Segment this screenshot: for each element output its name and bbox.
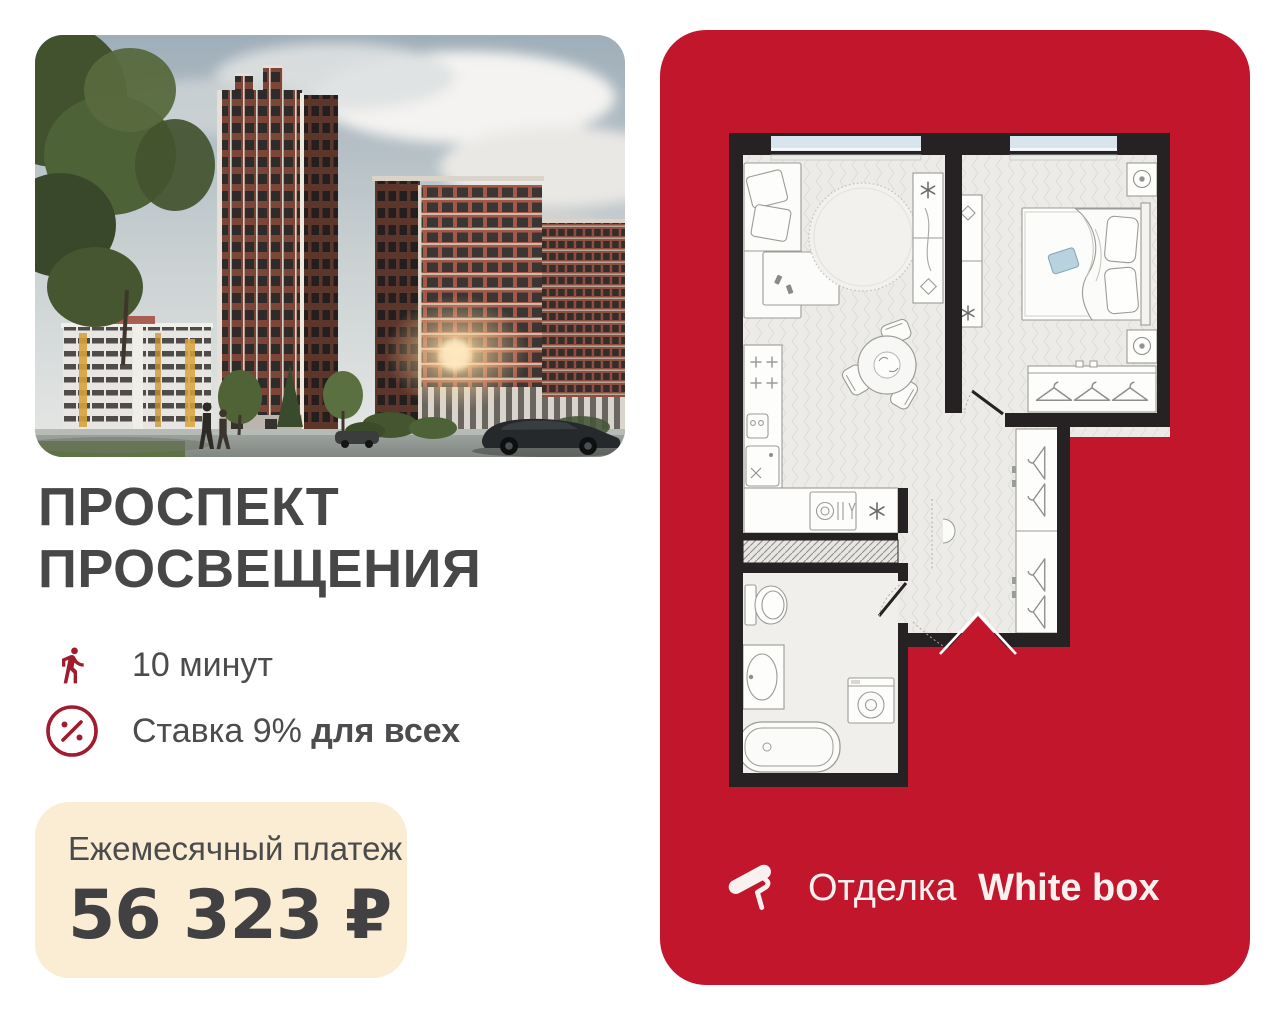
- percent-circle-icon: [44, 702, 100, 760]
- finish-label: Отделка White box: [808, 867, 1160, 910]
- washing-machine: [848, 678, 894, 723]
- walking-person-icon: [44, 636, 100, 694]
- floor-plan-card: Отделка White box: [660, 30, 1250, 985]
- page-title: ПРОСПЕКТ ПРОСВЕЩЕНИЯ: [38, 476, 481, 600]
- right-building: [372, 176, 544, 438]
- bed: [1022, 203, 1150, 325]
- payment-box: Ежемесячный платеж 56 323 ₽: [35, 802, 407, 978]
- left-building: [61, 316, 213, 437]
- feature-walk-label: 10 минут: [132, 646, 273, 685]
- kitchen-sink: [746, 446, 779, 486]
- feature-rate-label: Ставка 9% для всех: [132, 712, 460, 751]
- round-rug: [809, 183, 917, 291]
- floor-plan: [729, 133, 1170, 787]
- toilet: [745, 585, 787, 625]
- bedroom-wardrobe: [1028, 361, 1156, 412]
- feature-walk-time: 10 минут: [44, 636, 273, 694]
- title-line-1: ПРОСПЕКТ: [38, 476, 481, 538]
- payment-label: Ежемесячный платеж: [68, 830, 407, 868]
- shelving-unit: [913, 173, 943, 303]
- finish-row: Отделка White box: [726, 860, 1160, 916]
- title-line-2: ПРОСВЕЩЕНИЯ: [38, 538, 481, 600]
- paint-roller-icon: [726, 860, 778, 916]
- far-right-tower: [538, 219, 625, 437]
- coffee-machine: [747, 414, 768, 438]
- feature-rate: Ставка 9% для всех: [44, 702, 460, 760]
- complex-photo: [35, 35, 625, 457]
- bathroom-sink: [743, 645, 784, 709]
- payment-amount: 56 323 ₽: [68, 876, 407, 955]
- headboard: [1141, 203, 1150, 325]
- bathtub: [731, 722, 840, 772]
- hallway-closet: [1012, 429, 1060, 633]
- complex-photo-scene: [35, 35, 625, 457]
